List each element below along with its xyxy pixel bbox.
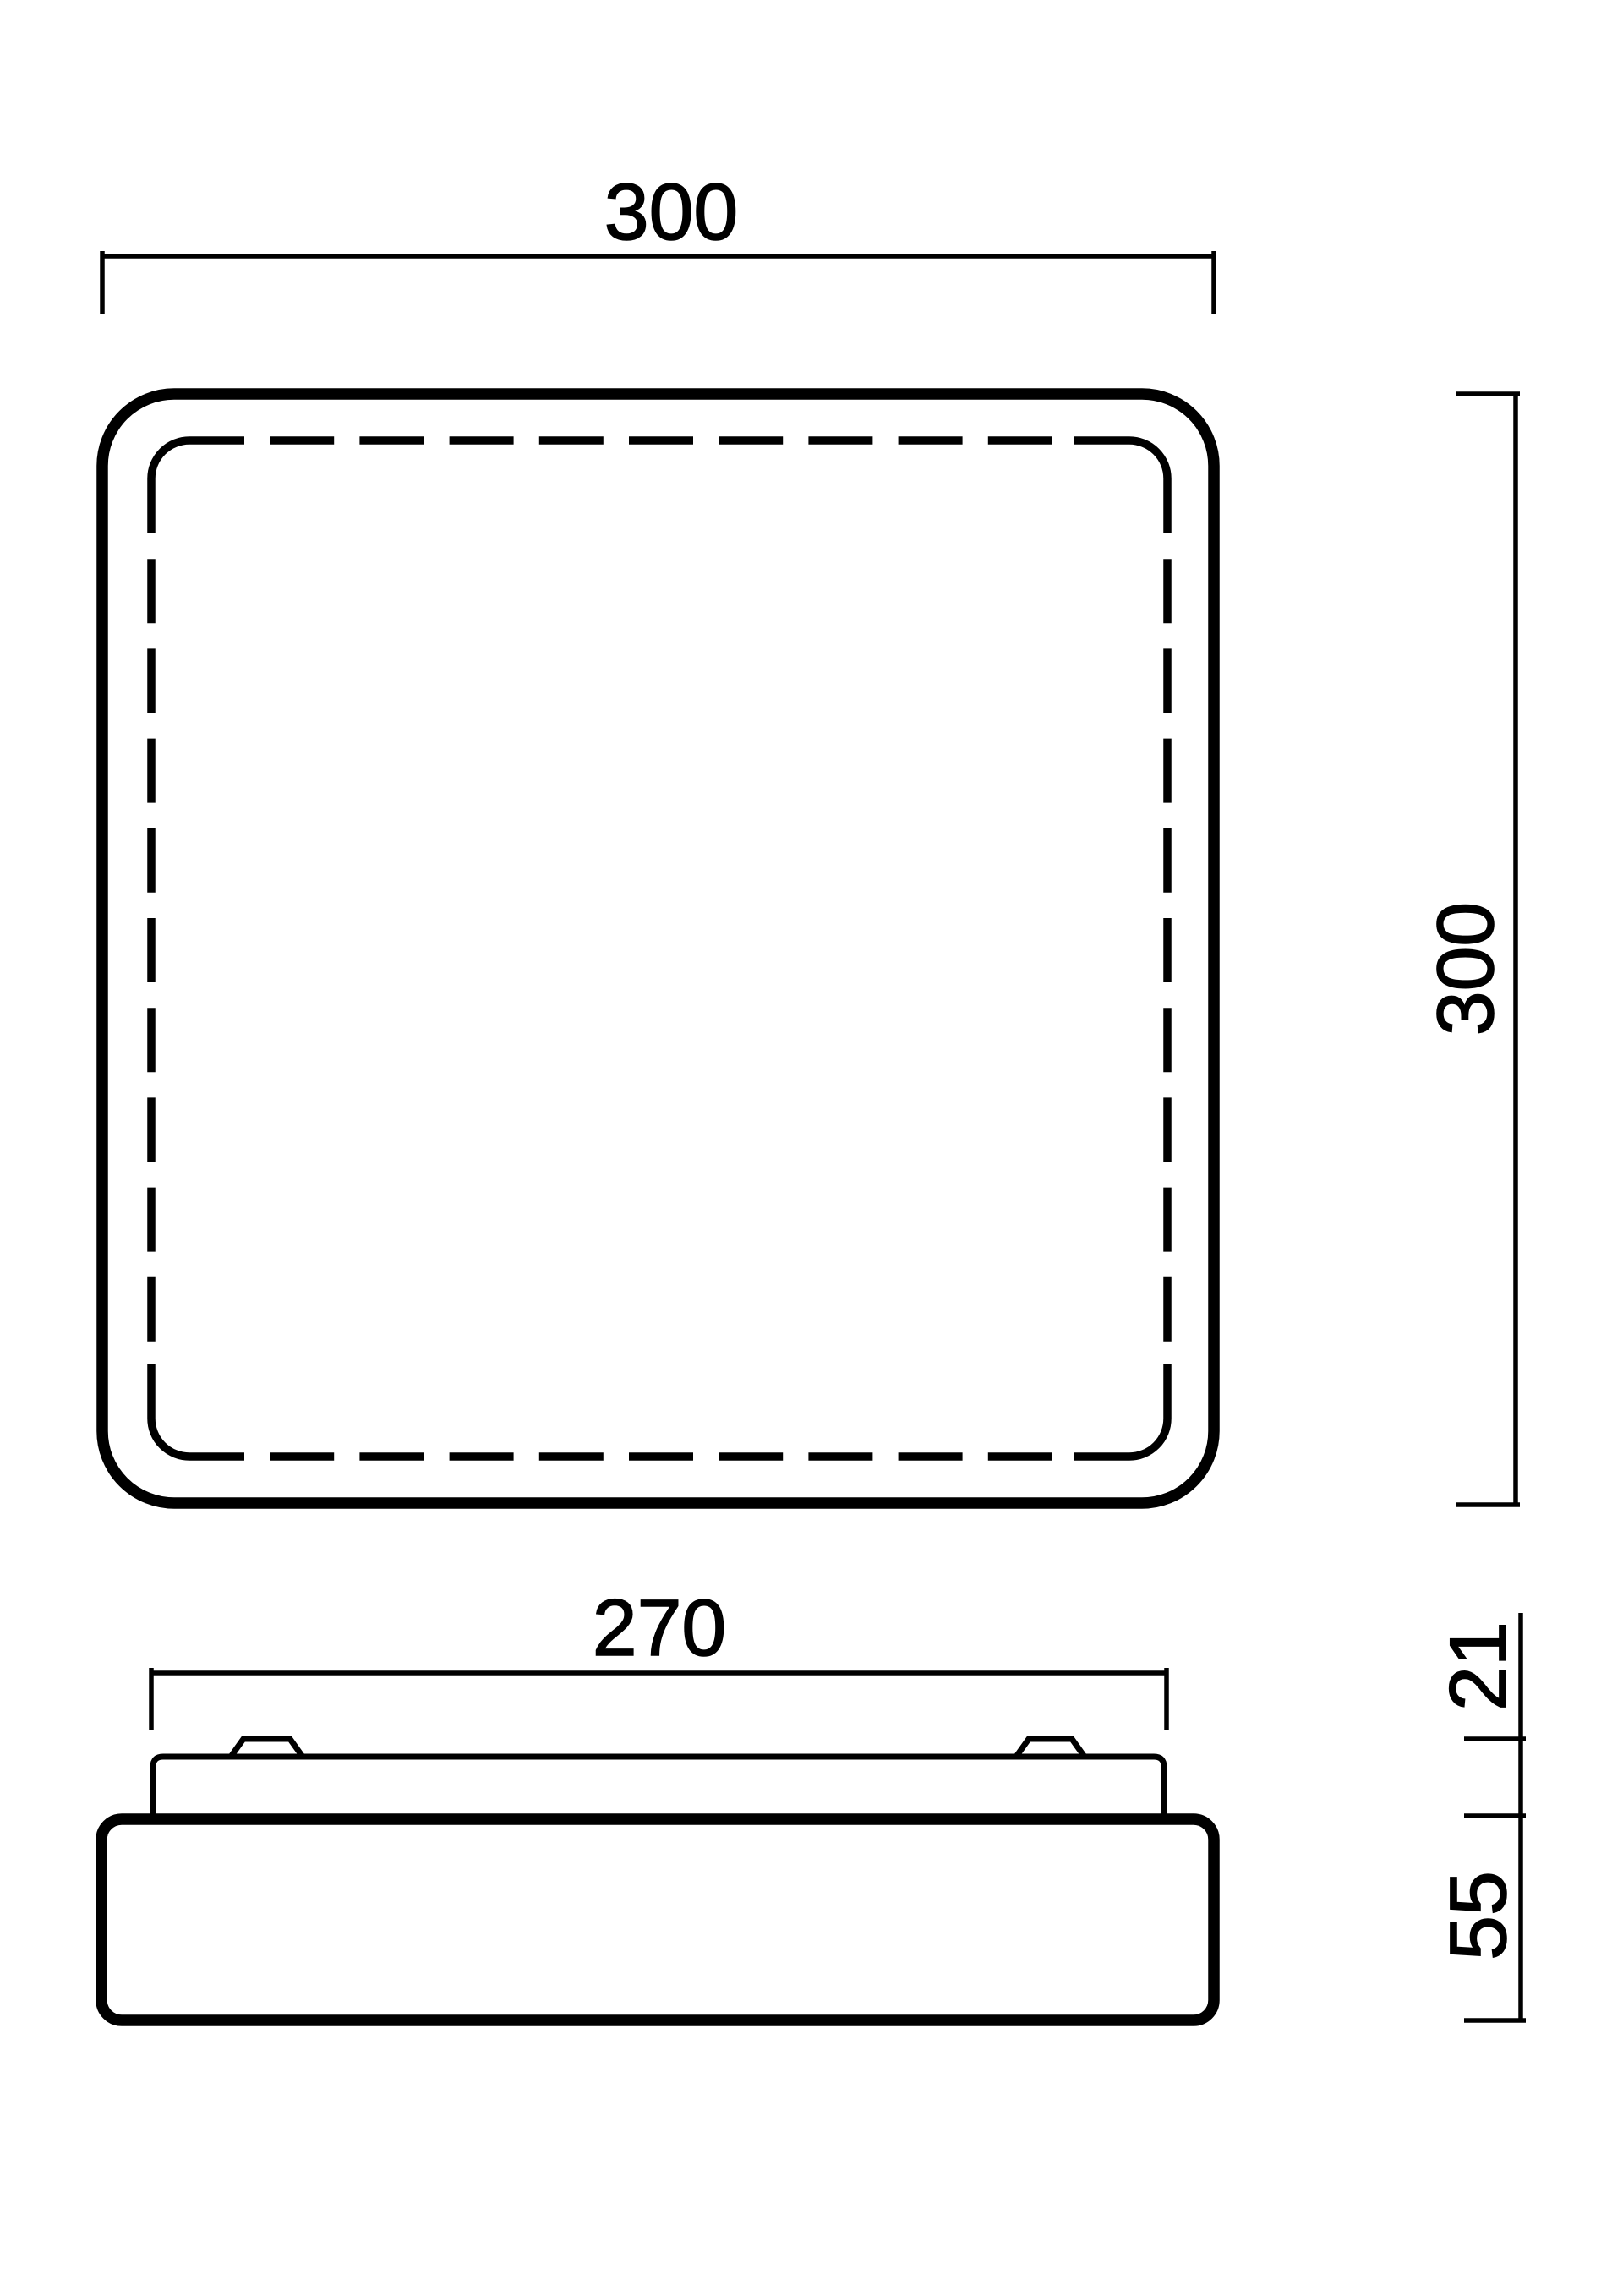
svg-text:270: 270 [593, 1583, 727, 1673]
svg-text:21: 21 [1434, 1621, 1523, 1711]
svg-text:300: 300 [604, 167, 739, 257]
svg-text:55: 55 [1434, 1871, 1523, 1960]
svg-text:300: 300 [1421, 902, 1511, 1036]
